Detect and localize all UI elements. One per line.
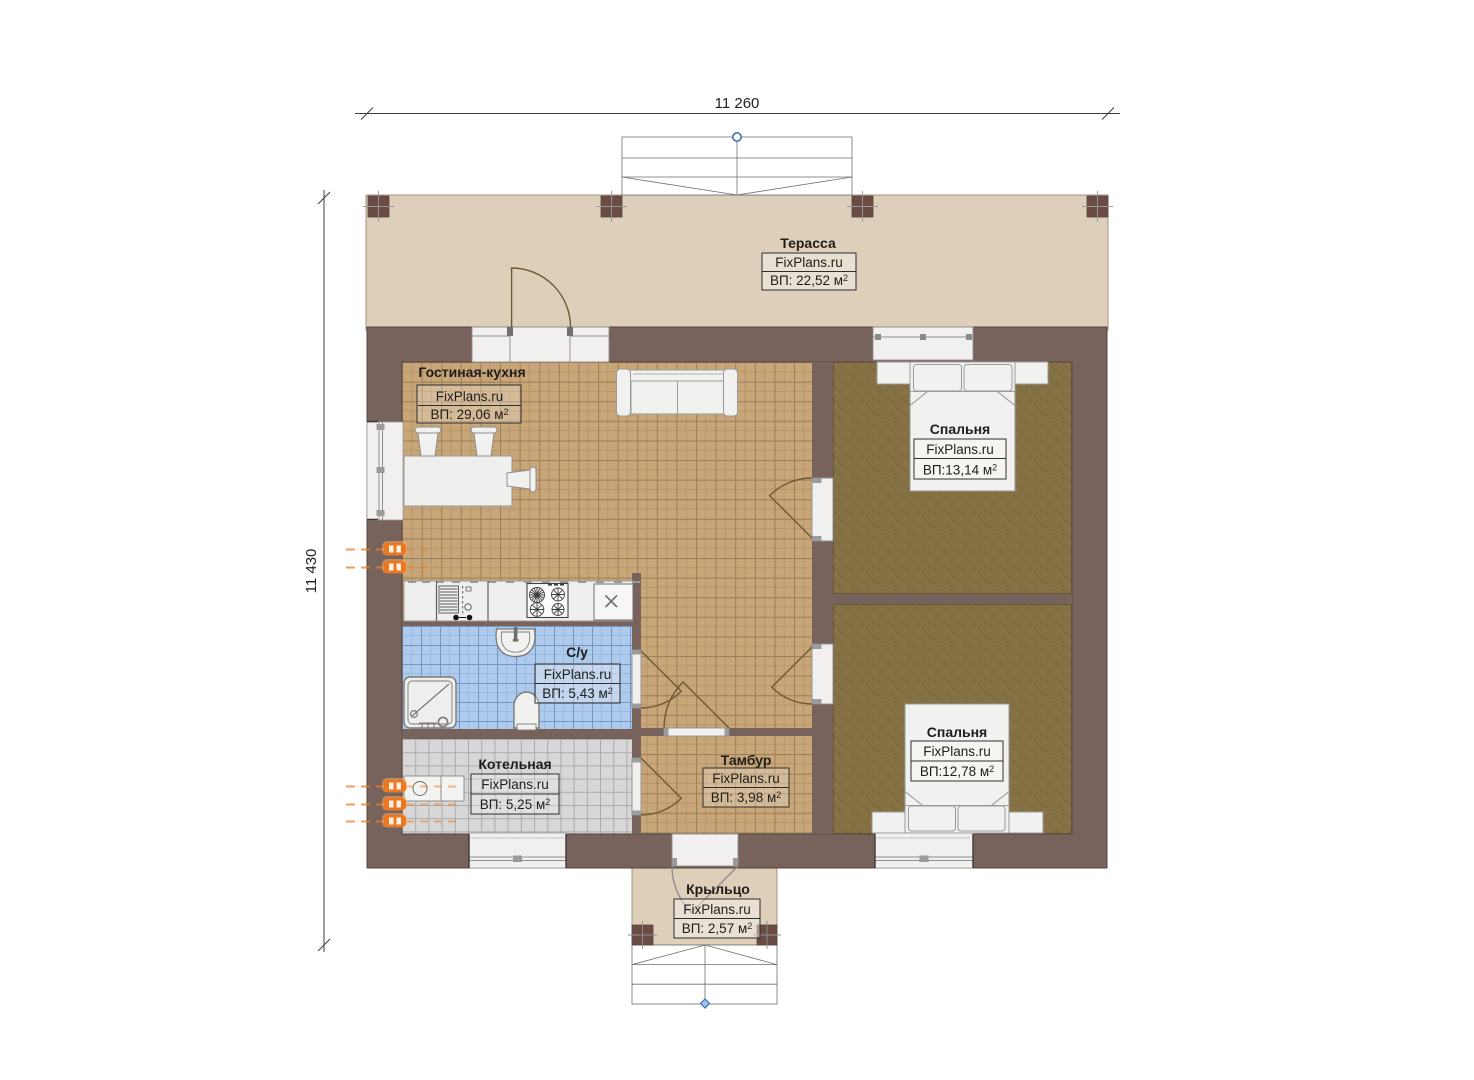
svg-text:Гостиная-кухня: Гостиная-кухня (418, 364, 525, 380)
svg-text:Котельная: Котельная (478, 756, 551, 772)
svg-text:Терасса: Терасса (780, 235, 836, 251)
svg-text:ВП: 3,98 м2: ВП: 3,98 м2 (711, 790, 782, 805)
svg-text:FixPlans.ru: FixPlans.ru (544, 667, 612, 682)
svg-text:FixPlans.ru: FixPlans.ru (775, 255, 843, 270)
svg-text:ВП: 29,06 м2: ВП: 29,06 м2 (430, 407, 508, 422)
svg-text:FixPlans.ru: FixPlans.ru (712, 771, 780, 786)
svg-text:FixPlans.ru: FixPlans.ru (923, 744, 991, 759)
svg-text:ВП: 22,52 м2: ВП: 22,52 м2 (770, 273, 848, 288)
svg-text:ВП: 2,57 м2: ВП: 2,57 м2 (682, 921, 753, 936)
svg-text:ВП: 5,43 м2: ВП: 5,43 м2 (542, 686, 613, 701)
svg-text:С/у: С/у (566, 644, 588, 660)
svg-text:Спальня: Спальня (930, 421, 990, 437)
svg-text:ВП:13,14 м2: ВП:13,14 м2 (923, 463, 997, 478)
svg-text:ВП:12,78 м2: ВП:12,78 м2 (920, 764, 994, 779)
svg-text:11 430: 11 430 (303, 549, 320, 594)
svg-text:FixPlans.ru: FixPlans.ru (926, 442, 994, 457)
svg-text:11 260: 11 260 (715, 95, 760, 112)
svg-text:Тамбур: Тамбур (721, 752, 772, 768)
svg-text:Крыльцо: Крыльцо (686, 881, 750, 897)
svg-text:FixPlans.ru: FixPlans.ru (683, 902, 751, 917)
svg-text:FixPlans.ru: FixPlans.ru (481, 777, 549, 792)
svg-text:Спальня: Спальня (927, 724, 987, 740)
svg-text:ВП: 5,25 м2: ВП: 5,25 м2 (480, 797, 551, 812)
svg-text:FixPlans.ru: FixPlans.ru (436, 389, 504, 404)
